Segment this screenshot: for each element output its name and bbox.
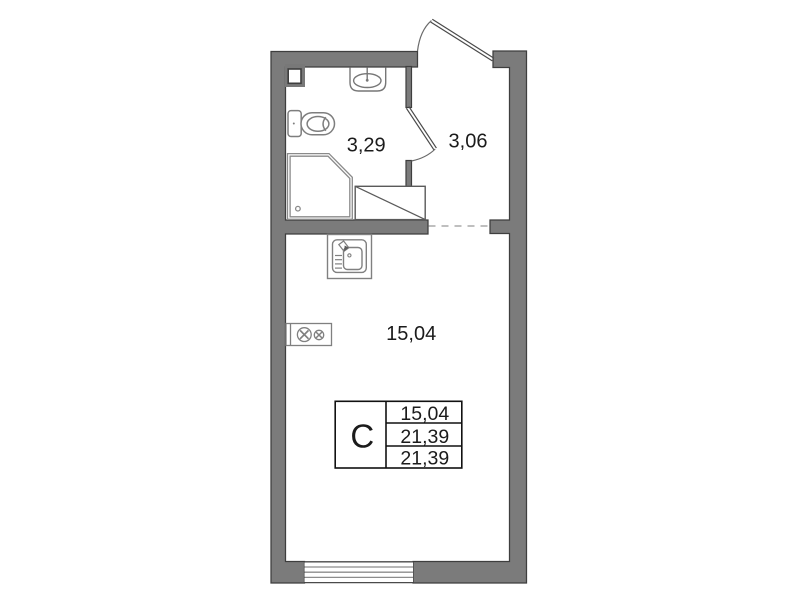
svg-text:3,06: 3,06 (449, 131, 488, 153)
svg-text:21,39: 21,39 (400, 426, 449, 448)
svg-text:21,39: 21,39 (400, 448, 449, 470)
svg-text:С: С (350, 418, 374, 455)
svg-text:15,04: 15,04 (386, 323, 436, 345)
svg-text:15,04: 15,04 (400, 403, 449, 425)
svg-text:3,29: 3,29 (347, 134, 386, 156)
